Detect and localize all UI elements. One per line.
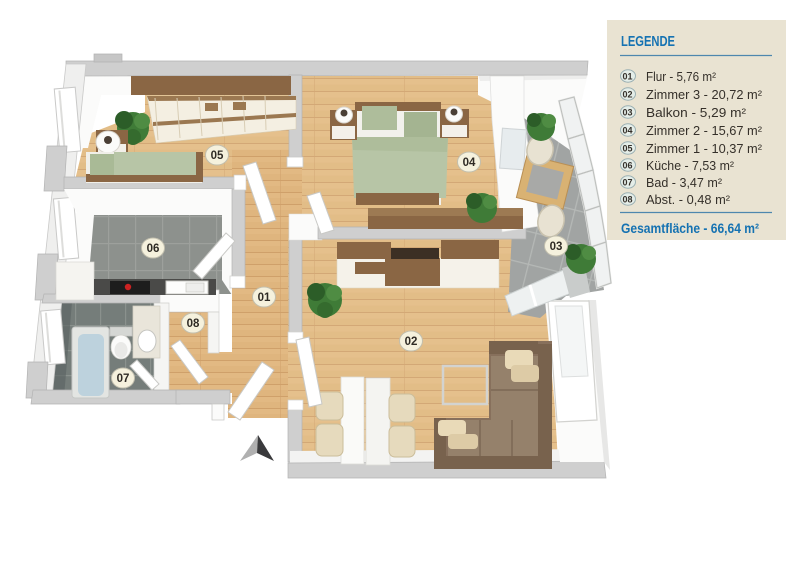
- svg-text:Gesamtfläche - 66,64 m²: Gesamtfläche - 66,64 m²: [621, 220, 759, 236]
- svg-text:03: 03: [550, 241, 563, 253]
- svg-text:Balkon - 5,29 m²: Balkon - 5,29 m²: [646, 105, 747, 120]
- svg-text:07: 07: [117, 373, 130, 385]
- svg-text:08: 08: [623, 195, 633, 205]
- svg-text:06: 06: [147, 243, 160, 255]
- svg-text:06: 06: [623, 161, 633, 171]
- svg-text:Zimmer 2 - 15,67 m²: Zimmer 2 - 15,67 m²: [646, 123, 763, 138]
- svg-text:Zimmer 1 - 10,37 m²: Zimmer 1 - 10,37 m²: [646, 141, 763, 156]
- svg-text:Zimmer 3 - 20,72 m²: Zimmer 3 - 20,72 m²: [646, 87, 763, 102]
- svg-text:05: 05: [623, 144, 633, 154]
- svg-text:04: 04: [463, 157, 476, 169]
- svg-text:Abst. - 0,48 m²: Abst. - 0,48 m²: [646, 192, 731, 207]
- svg-text:Bad - 3,47 m²: Bad - 3,47 m²: [646, 175, 723, 190]
- svg-text:Küche - 7,53 m²: Küche - 7,53 m²: [646, 158, 735, 173]
- svg-text:01: 01: [258, 292, 271, 304]
- svg-text:LEGENDE: LEGENDE: [621, 34, 675, 50]
- svg-text:02: 02: [405, 336, 418, 348]
- svg-text:03: 03: [623, 108, 633, 118]
- svg-text:07: 07: [623, 178, 633, 188]
- svg-text:Flur - 5,76 m²: Flur - 5,76 m²: [646, 69, 717, 84]
- svg-text:01: 01: [623, 72, 633, 82]
- svg-text:02: 02: [623, 90, 633, 100]
- svg-text:05: 05: [211, 150, 224, 162]
- svg-text:08: 08: [187, 318, 200, 330]
- svg-text:04: 04: [623, 126, 633, 136]
